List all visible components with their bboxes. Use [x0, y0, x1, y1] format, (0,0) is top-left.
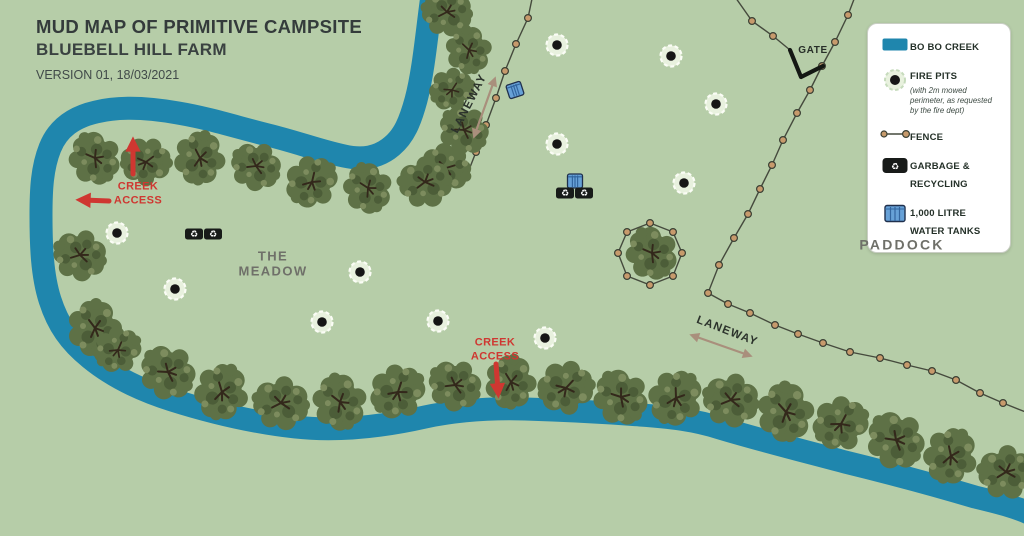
- legend-label: FENCE: [910, 132, 943, 143]
- legend-note: (with 2m mowed perimeter, as requested b…: [910, 86, 998, 116]
- legend-item-fence: FENCE: [880, 127, 998, 145]
- fence-post: [772, 322, 779, 329]
- legend-item-garbage: ♻ GARBAGE & RECYCLING: [880, 156, 998, 192]
- garbage-icon: ♻: [880, 157, 910, 174]
- legend-label: 1,000 LITRE WATER TANKS: [910, 208, 980, 237]
- fence-post: [769, 162, 776, 169]
- fence-post: [731, 235, 738, 242]
- fence-post: [953, 377, 960, 384]
- tree-icon: [120, 139, 173, 187]
- fence-post: [624, 273, 631, 280]
- fence-post: [747, 310, 754, 317]
- fence-post: [757, 186, 764, 193]
- fence-post: [513, 41, 520, 48]
- fence-post: [780, 137, 787, 144]
- fence-post: [877, 355, 884, 362]
- legend-label: FIRE PITS: [910, 71, 957, 82]
- legend-item-creek: BO BO CREEK: [880, 37, 998, 55]
- fire-pit-marker: [674, 173, 695, 194]
- fence-post: [1000, 400, 1007, 407]
- fence-post: [502, 68, 509, 75]
- fence-post: [770, 33, 777, 40]
- svg-text:♻: ♻: [561, 189, 569, 199]
- svg-text:♻: ♻: [190, 230, 198, 240]
- fence-post: [679, 250, 686, 257]
- map-title: MUD MAP OF PRIMITIVE CAMPSITE: [36, 16, 362, 38]
- fence-post: [705, 290, 712, 297]
- water-tank-icon: [880, 204, 910, 223]
- fence-post: [716, 262, 723, 269]
- legend-label: GARBAGE & RECYCLING: [910, 161, 970, 190]
- fire-pit-marker: [547, 35, 568, 56]
- legend-item-water-tanks: 1,000 LITRE WATER TANKS: [880, 203, 998, 239]
- fence-post: [977, 390, 984, 397]
- garbage-bin-marker: ♻: [204, 229, 222, 241]
- creek-access-arrow: [496, 364, 498, 391]
- fence-post: [493, 95, 500, 102]
- fire-pit-icon: [880, 67, 910, 93]
- fence-post: [725, 301, 732, 308]
- water-tank-marker: [506, 81, 525, 99]
- garbage-bin-marker: ♻: [185, 229, 203, 241]
- fire-pit-marker: [535, 328, 556, 349]
- fence-post: [794, 110, 801, 117]
- legend: BO BO CREEK FIRE PITS (with 2m mowed per…: [867, 23, 1011, 253]
- fence-post: [670, 273, 677, 280]
- fence-post: [807, 87, 814, 94]
- garbage-bin-marker: ♻: [575, 188, 593, 200]
- recycle-glyph: ♻: [891, 163, 899, 173]
- water-tank-layer: [506, 81, 583, 188]
- fence-post: [525, 15, 532, 22]
- fire-pit-marker: [661, 46, 682, 67]
- fence-post: [647, 282, 654, 289]
- fire-pit-marker: [547, 134, 568, 155]
- legend-label: BO BO CREEK: [910, 42, 979, 53]
- fence-post: [847, 349, 854, 356]
- fence-post: [749, 18, 756, 25]
- fence-icon: [880, 128, 910, 140]
- fire-pit-marker: [428, 311, 449, 332]
- creek-access-arrow: [83, 200, 109, 201]
- fence-post: [845, 12, 852, 19]
- svg-text:♻: ♻: [209, 230, 217, 240]
- creek-swatch-icon: [880, 38, 910, 51]
- water-tank-marker: [568, 174, 583, 188]
- fence-post: [615, 250, 622, 257]
- fence-post: [795, 331, 802, 338]
- title-block: MUD MAP OF PRIMITIVE CAMPSITE BLUEBELL H…: [36, 16, 362, 82]
- map-subtitle: BLUEBELL HILL FARM: [36, 40, 362, 60]
- fence-line: [733, 0, 790, 50]
- fire-pit-marker: [165, 279, 186, 300]
- fence-post: [904, 362, 911, 369]
- laneway-arrow: [694, 336, 748, 355]
- svg-text:♻: ♻: [580, 189, 588, 199]
- fire-pit-marker: [350, 262, 371, 283]
- tree-icon: [171, 126, 230, 190]
- fence-post: [745, 211, 752, 218]
- fence-post: [670, 229, 677, 236]
- fence-post: [647, 220, 654, 227]
- map-version: VERSION 01, 18/03/2021: [36, 68, 362, 82]
- fire-pit-marker: [107, 223, 128, 244]
- fence-post: [820, 340, 827, 347]
- fence-post: [624, 229, 631, 236]
- fence-post: [929, 368, 936, 375]
- fence-post: [832, 39, 839, 46]
- garbage-bin-marker: ♻: [556, 188, 574, 200]
- fire-pit-marker: [706, 94, 727, 115]
- campsite-map: ♻♻♻♻ MUD MAP OF PRIMITIVE CAMPSITE BLUEB…: [0, 0, 1024, 536]
- fire-pit-marker: [312, 312, 333, 333]
- legend-item-fire-pits: FIRE PITS (with 2m mowed perimeter, as r…: [880, 66, 998, 116]
